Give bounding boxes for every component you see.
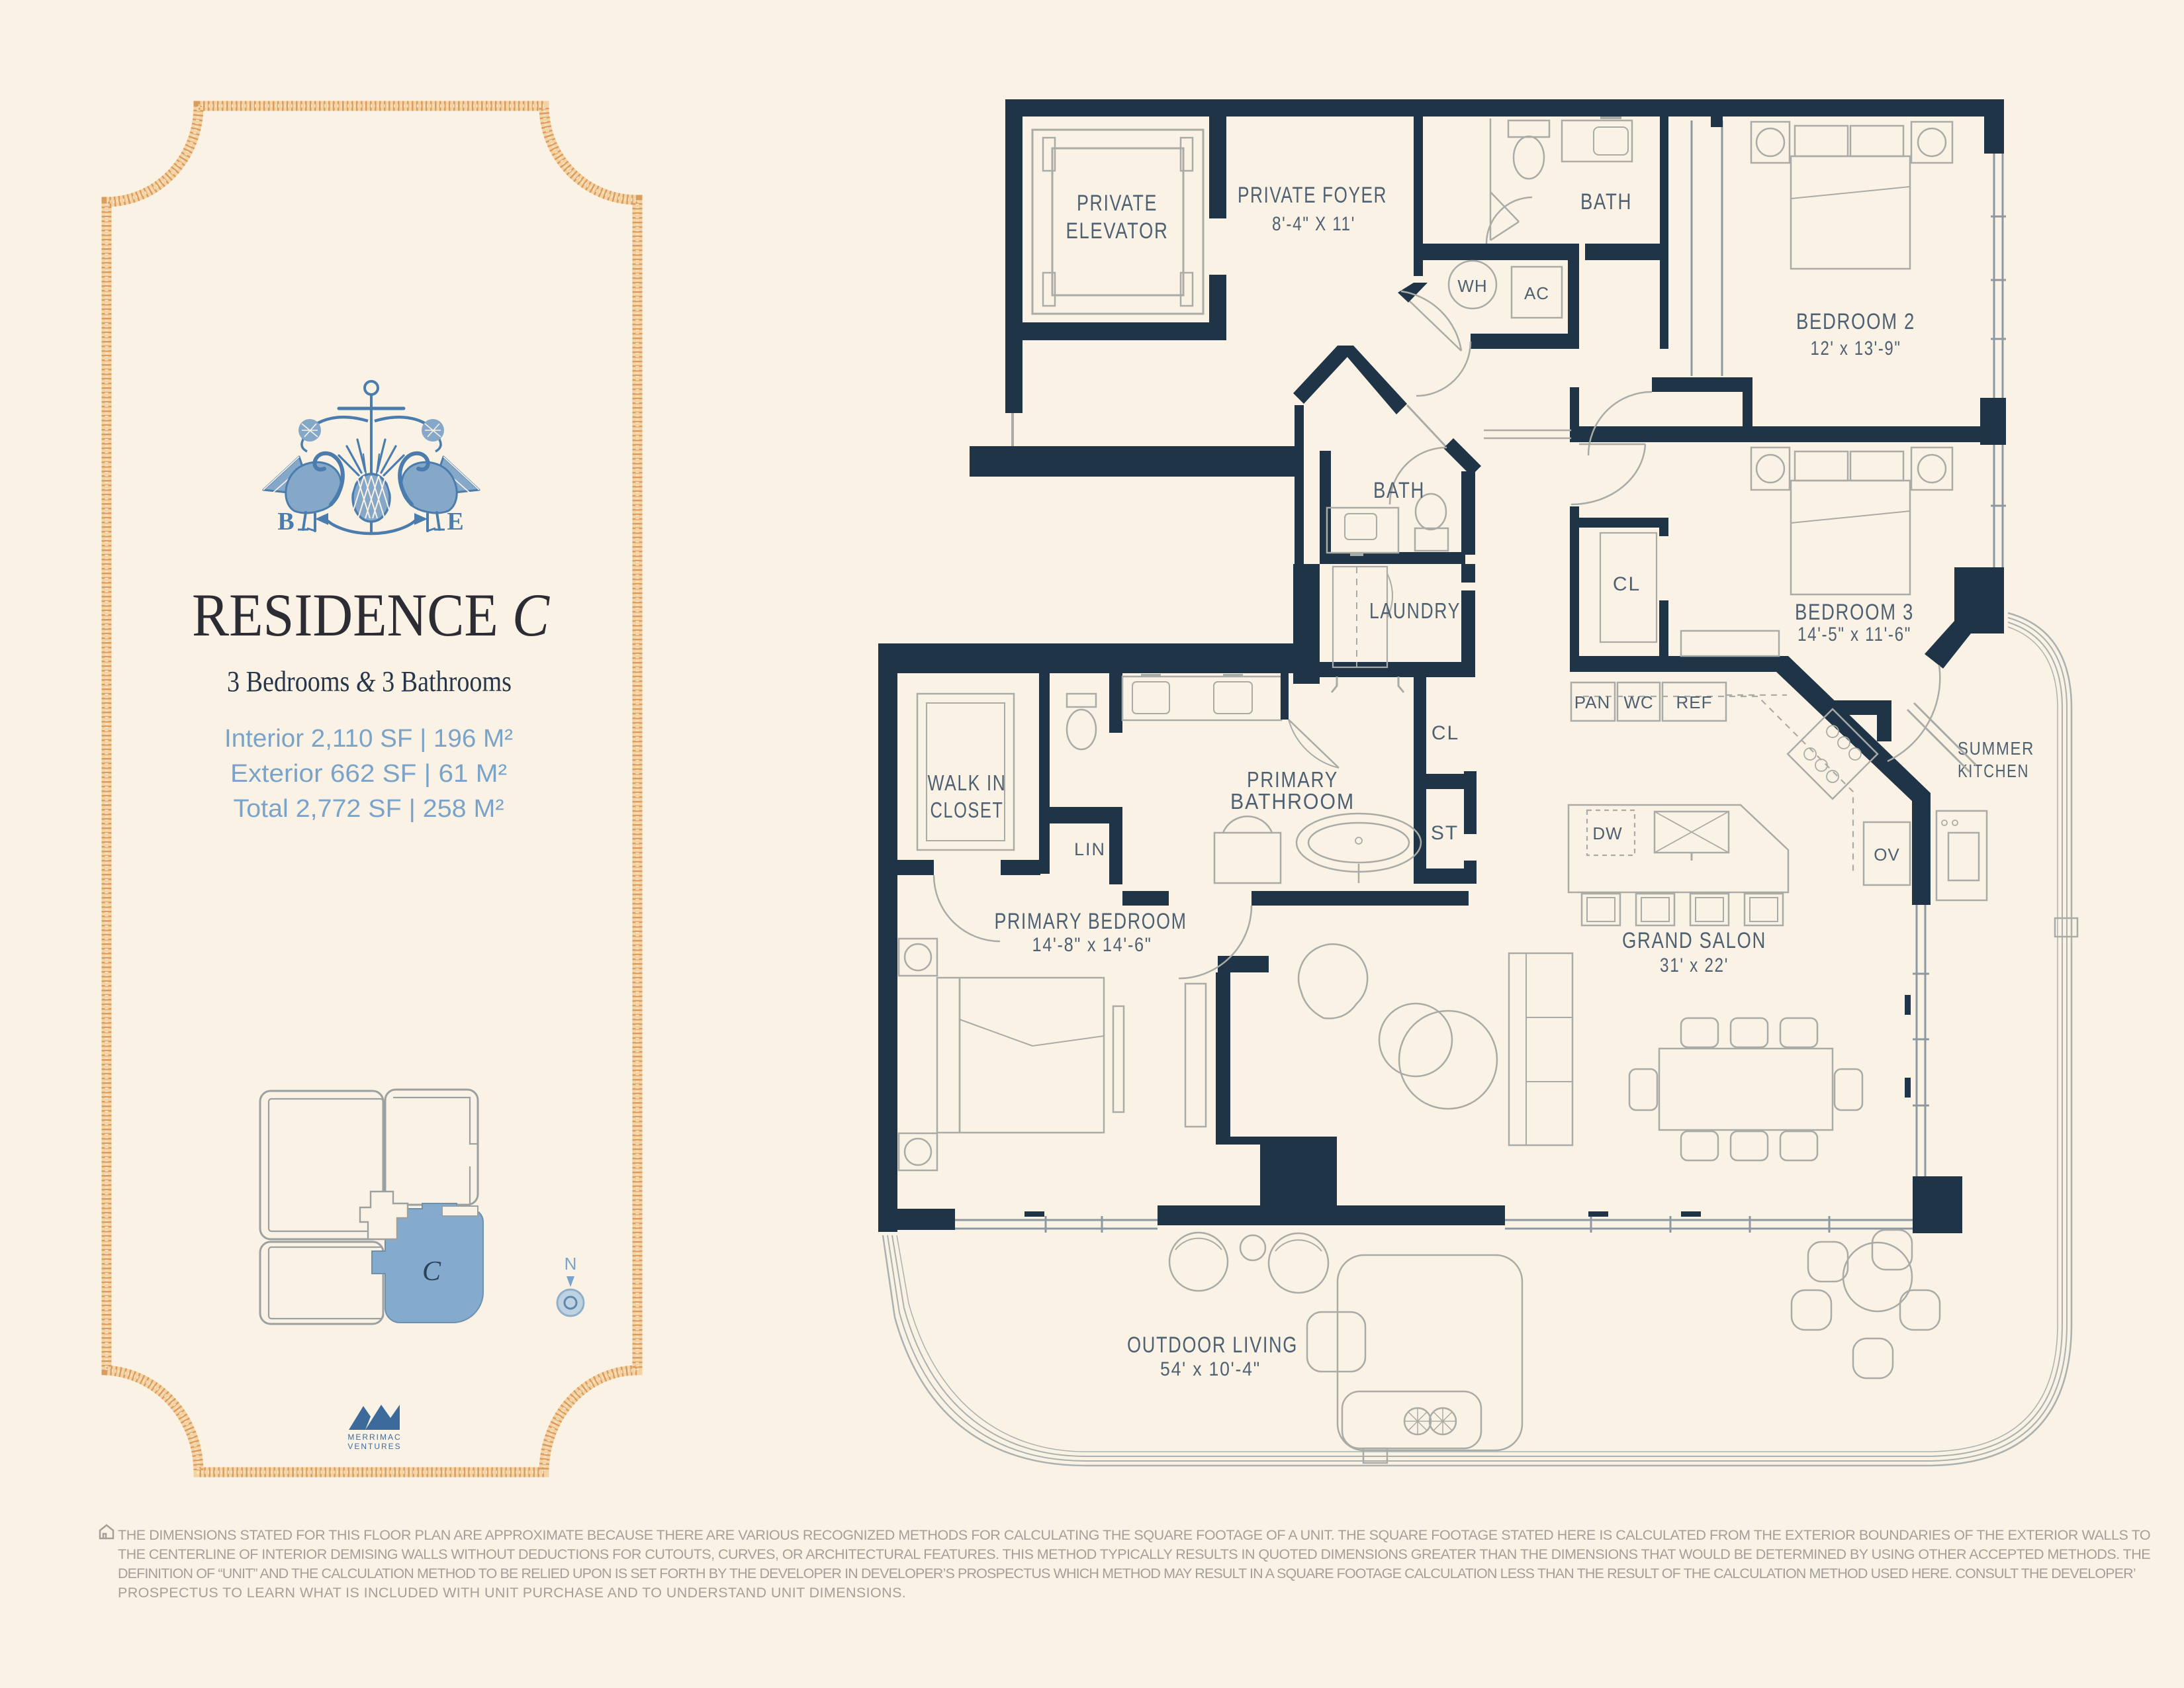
svg-text:RESIDENCE C: RESIDENCE C (192, 581, 550, 649)
svg-text:31' x 22': 31' x 22' (1660, 955, 1729, 976)
svg-text:PRIMARY: PRIMARY (1247, 767, 1338, 792)
svg-text:SUMMER: SUMMER (1958, 738, 2034, 759)
svg-text:C: C (422, 1256, 441, 1287)
svg-text:WC: WC (1623, 692, 1653, 712)
svg-text:DEFINITION OF “UNIT” AND THE C: DEFINITION OF “UNIT” AND THE CALCULATION… (118, 1566, 2136, 1581)
svg-text:PROSPECTUS TO LEARN WHAT IS IN: PROSPECTUS TO LEARN WHAT IS INCLUDED WIT… (118, 1585, 906, 1601)
svg-text:THE DIMENSIONS STATED FOR THIS: THE DIMENSIONS STATED FOR THIS FLOOR PLA… (118, 1527, 2151, 1543)
svg-text:3 Bedrooms & 3 Bathrooms: 3 Bedrooms & 3 Bathrooms (227, 665, 512, 698)
svg-text:WALK IN: WALK IN (928, 771, 1007, 795)
svg-text:CL: CL (1613, 573, 1641, 595)
svg-text:E: E (447, 508, 463, 536)
svg-text:14'-8" x 14'-6": 14'-8" x 14'-6" (1032, 934, 1152, 956)
svg-text:CL: CL (1432, 722, 1459, 744)
svg-text:AC: AC (1524, 283, 1549, 303)
svg-text:PRIVATE FOYER: PRIVATE FOYER (1238, 183, 1387, 208)
svg-text:BATH: BATH (1373, 478, 1425, 503)
svg-text:PAN: PAN (1574, 692, 1611, 712)
svg-text:8'-4" X 11': 8'-4" X 11' (1272, 213, 1355, 235)
svg-text:OV: OV (1874, 845, 1900, 865)
svg-text:DW: DW (1592, 823, 1622, 843)
svg-text:MERRIMAC: MERRIMAC (347, 1432, 401, 1442)
svg-text:PRIVATE: PRIVATE (1077, 191, 1158, 216)
svg-text:B: B (277, 508, 294, 536)
svg-text:OUTDOOR LIVING: OUTDOOR LIVING (1127, 1333, 1298, 1358)
svg-text:WH: WH (1457, 276, 1487, 296)
svg-text:BEDROOM 3: BEDROOM 3 (1795, 600, 1914, 625)
svg-text:BATH: BATH (1580, 189, 1632, 214)
svg-text:VENTURES: VENTURES (347, 1442, 401, 1451)
svg-text:ELEVATOR: ELEVATOR (1066, 218, 1169, 244)
svg-text:Total 2,772 SF | 258 M²: Total 2,772 SF | 258 M² (234, 795, 504, 823)
svg-text:GRAND SALON: GRAND SALON (1622, 928, 1766, 953)
svg-text:54' x 10'-4": 54' x 10'-4" (1160, 1358, 1261, 1380)
svg-text:12' x 13'-9": 12' x 13'-9" (1811, 338, 1901, 359)
svg-text:REF: REF (1676, 692, 1713, 712)
svg-text:BEDROOM 2: BEDROOM 2 (1796, 309, 1915, 334)
svg-text:Interior 2,110 SF | 196 M²: Interior 2,110 SF | 196 M² (224, 725, 513, 753)
svg-text:BATHROOM: BATHROOM (1230, 789, 1355, 814)
svg-text:CLOSET: CLOSET (931, 798, 1004, 822)
svg-text:14'-5" x 11'-6": 14'-5" x 11'-6" (1797, 624, 1911, 645)
svg-text:LAUNDRY: LAUNDRY (1369, 598, 1461, 623)
svg-text:LIN: LIN (1074, 839, 1106, 859)
svg-text:PRIMARY BEDROOM: PRIMARY BEDROOM (995, 909, 1187, 934)
svg-text:THE CENTERLINE OF INTERIOR DEM: THE CENTERLINE OF INTERIOR DEMISING WALL… (118, 1546, 2151, 1562)
svg-text:Exterior 662 SF | 61 M²: Exterior 662 SF | 61 M² (230, 760, 507, 788)
svg-text:ST: ST (1431, 822, 1459, 844)
svg-text:N: N (565, 1254, 577, 1274)
